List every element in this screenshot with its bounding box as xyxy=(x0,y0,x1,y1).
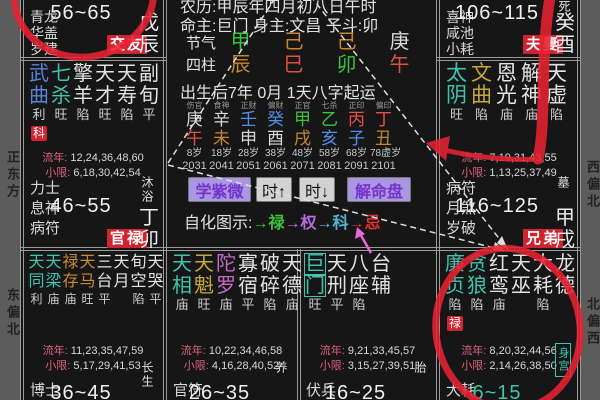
dayun-column[interactable]: 伤官庚午8岁2031 xyxy=(181,101,208,172)
star-column: 红鸾庙 xyxy=(488,253,510,331)
star-column: 解神庙 xyxy=(519,63,544,123)
star-column: 天德庙 xyxy=(281,253,303,313)
god-label: 咸池 xyxy=(446,25,474,41)
stem-char: 甲 xyxy=(554,207,576,229)
dayun-age: 18岁 xyxy=(208,148,235,160)
star-char: 贞 xyxy=(445,275,465,297)
dayun-column[interactable]: 正财壬申28岁2051 xyxy=(235,101,262,172)
dayun-age: 78虚岁 xyxy=(370,148,397,160)
star-status: 庙 xyxy=(219,297,232,313)
star-status: 平 xyxy=(98,291,110,307)
star-column: 天刑平 xyxy=(326,253,348,313)
star-char: 天 xyxy=(45,253,61,272)
star-status: 陷 xyxy=(132,291,144,307)
life-stage: 沐浴 xyxy=(139,176,156,204)
life-stage: 墓 xyxy=(555,176,572,190)
star-char: 曲 xyxy=(29,85,49,107)
star-char: 文 xyxy=(471,63,492,85)
age-range: 6~15 xyxy=(449,382,545,400)
god-label: 病符 xyxy=(30,219,60,239)
dayun-year: 2071 xyxy=(289,160,316,172)
star-status: 平 xyxy=(149,291,161,307)
body-palace-badge: 身宫 xyxy=(555,343,571,377)
star-char: 旬 xyxy=(139,85,159,107)
fortune-lines: 流年: 11,23,35,47,59小限: 5,17,29,41,53 xyxy=(33,344,153,374)
star-char: 三 xyxy=(96,253,112,272)
xiaoxian-line: 小限: 5,17,29,41,53 xyxy=(33,359,153,374)
star-char: 巨 xyxy=(304,253,326,275)
star-status: 陷 xyxy=(470,297,483,313)
star-column: 天梁庙 xyxy=(45,253,62,307)
star-char: 碎 xyxy=(260,275,280,297)
liunian-label: 流年: xyxy=(42,152,70,164)
star-status: 利 xyxy=(30,291,42,307)
dayun-age: 58岁 xyxy=(316,148,343,160)
liunian-label: 流年: xyxy=(461,345,489,357)
star-status: 陷 xyxy=(536,297,549,313)
dayun-year: 2061 xyxy=(262,160,289,172)
liunian-values: 11,23,35,47,59 xyxy=(71,345,144,357)
age-range: 16~25 xyxy=(309,382,402,400)
star-char: 天 xyxy=(546,63,567,85)
star-list: 武曲利科七杀旺擎羊陷天才旺天寿陷副旬平 xyxy=(28,63,160,141)
star-column: 巨门旺 xyxy=(304,253,326,313)
star-char: 破 xyxy=(260,253,280,275)
dayun-branch: 亥 xyxy=(316,129,343,148)
ten-god-label: 七杀 xyxy=(316,101,343,110)
star-char: 陀 xyxy=(216,253,236,275)
star-char: 天 xyxy=(113,253,129,272)
liunian-values: 9,21,33,45,57 xyxy=(348,345,415,357)
learn-ziwei-button[interactable]: 学紫微 xyxy=(188,177,251,202)
star-status: 平 xyxy=(142,107,155,123)
star-char: 羊 xyxy=(73,85,93,107)
life-stage: 养 xyxy=(273,361,290,375)
stem-char: 戊 xyxy=(138,12,160,34)
pillar-stem: 己 xyxy=(267,31,320,54)
star-status: 庙 xyxy=(47,291,59,307)
star-char: 天 xyxy=(194,253,214,275)
star-char: 辅 xyxy=(371,275,391,297)
dayun-year: 2101 xyxy=(370,160,397,172)
star-status: 陷 xyxy=(352,297,365,313)
palace-hai[interactable]: 廉贞陷禄贪狼陷红鸾庙天巫大耗陷龙德流年: 8,20,32,44,56小限: 2,… xyxy=(441,251,577,400)
zihua-legend: 自化图示:→禄→权→科→忌 xyxy=(184,209,381,233)
dayun-age: 28岁 xyxy=(235,148,262,160)
zihua-label: 自化图示: xyxy=(184,215,252,232)
star-char: 刑 xyxy=(327,275,347,297)
star-char: 德 xyxy=(555,275,575,297)
dayun-stem: 乙 xyxy=(316,110,343,129)
liunian-values: 7,19,31,43,55 xyxy=(489,152,556,164)
star-column: 武曲利科 xyxy=(28,63,50,141)
liunian-label: 流年: xyxy=(320,345,348,357)
liunian-label: 流年: xyxy=(181,345,209,357)
direction-label-north-west: 北偏西 xyxy=(583,297,600,348)
liunian-line: 流年: 8,20,32,44,56 xyxy=(449,344,569,359)
zihua-item: →权 xyxy=(284,215,316,232)
star-char: 梁 xyxy=(45,272,61,291)
star-char: 龙 xyxy=(555,253,575,275)
age-range: 46~55 xyxy=(33,195,129,218)
star-char: 禄 xyxy=(62,253,78,272)
dayun-branch: 未 xyxy=(208,129,235,148)
star-char: 相 xyxy=(172,275,192,297)
four-pillars-label: 节气 四柱 xyxy=(186,33,216,77)
star-list: 巨门旺天刑平八座陷台辅 xyxy=(304,253,392,313)
star-char: 存 xyxy=(62,272,78,291)
pillar-stem: 己 xyxy=(320,31,373,54)
star-char: 天 xyxy=(172,253,192,275)
sizhu-label: 四柱 xyxy=(186,55,216,77)
star-char: 武 xyxy=(29,63,49,85)
pillar-column: 庚午 xyxy=(373,31,426,77)
star-status: 平 xyxy=(330,297,343,313)
star-column: 副旬平 xyxy=(138,63,160,141)
star-char: 恩 xyxy=(496,63,517,85)
pillar-branch: 巳 xyxy=(267,54,320,77)
fortune-lines: 流年: 12,24,36,48,60小限: 6,18,30,42,54 xyxy=(33,151,153,181)
star-char: 天 xyxy=(95,63,115,85)
star-char: 天 xyxy=(28,253,44,272)
liunian-line: 流年: 7,19,31,43,55 xyxy=(449,151,569,166)
star-status: 旺 xyxy=(54,107,67,123)
dayun-age: 48岁 xyxy=(289,148,316,160)
center-info-panel: 农历:甲辰年四月初八日午时 命主:巨门 身主:文昌 子斗:卯 节气 四柱 甲辰己… xyxy=(168,0,435,248)
xiaoxian-label: 小限: xyxy=(184,360,212,372)
star-column: 天相庙 xyxy=(171,253,193,313)
god-label: 岁破 xyxy=(446,219,476,239)
star-char: 耗 xyxy=(533,275,553,297)
star-char: 寿 xyxy=(117,85,137,107)
star-status: 旺 xyxy=(81,291,93,307)
zihua-items: →禄→权→科→忌 xyxy=(252,215,380,232)
branch-char: 辰 xyxy=(138,34,160,56)
star-status: 庙 xyxy=(285,297,298,313)
ten-god-label: 偏财 xyxy=(262,101,289,110)
decade-luck-table: 伤官庚午8岁2031食神辛未18岁2041正财壬申28岁2051偏财癸酉38岁2… xyxy=(181,101,397,172)
ten-god-label: 正印 xyxy=(343,101,370,110)
star-column: 恩光庙 xyxy=(494,63,519,123)
dayun-year: 2031 xyxy=(181,160,208,172)
star-char: 曲 xyxy=(471,85,492,107)
dayun-branch: 子 xyxy=(343,129,370,148)
star-column: 八座陷 xyxy=(348,253,370,313)
sihua-badge: 禄 xyxy=(447,316,463,331)
star-char: 马 xyxy=(79,272,95,291)
star-status: 旺 xyxy=(450,107,463,123)
star-char: 杀 xyxy=(51,85,71,107)
star-char: 台 xyxy=(371,253,391,275)
star-char: 旬 xyxy=(130,253,146,272)
xiaoxian-label: 小限: xyxy=(45,360,73,372)
star-column: 贪狼陷 xyxy=(466,253,488,331)
palace-chou[interactable]: 天相庙天魁旺陀罗庙寡宿平破碎陷天德庙流年: 10,22,34,46,58小限: … xyxy=(168,251,295,400)
star-column: 廉贞陷禄 xyxy=(444,253,466,331)
pillar-branch: 午 xyxy=(373,54,426,77)
god-label: 岁建 xyxy=(30,41,58,57)
star-status: 陷 xyxy=(76,107,89,123)
hour-down-button[interactable]: 时↓ xyxy=(299,177,335,202)
god-label: 小耗 xyxy=(446,41,474,57)
xiaoxian-label: 小限: xyxy=(320,360,348,372)
star-list: 太阴旺文曲陷恩光庙解神庙天虚陷 xyxy=(444,63,569,123)
star-column: 七杀旺 xyxy=(50,63,72,141)
branch-char: 卯 xyxy=(138,229,160,251)
star-column: 天月 xyxy=(113,253,130,307)
dayun-branch: 申 xyxy=(235,129,262,148)
star-char: 大 xyxy=(533,253,553,275)
star-char: 太 xyxy=(446,63,467,85)
xiaoxian-values: 3,15,27,39,51 xyxy=(348,360,415,372)
dayun-branch: 戌 xyxy=(289,129,316,148)
liunian-values: 10,22,34,46,58 xyxy=(209,345,282,357)
dayun-stem: 庚 xyxy=(181,110,208,129)
sihua-badge: 科 xyxy=(31,126,47,141)
fortune-lines: 流年: 7,19,31,43,55小限: 1,13,25,37,49 xyxy=(449,151,569,181)
liunian-line: 流年: 9,21,33,45,57 xyxy=(309,344,426,359)
star-column: 天寿陷 xyxy=(116,63,138,141)
dayun-year: 2081 xyxy=(316,160,343,172)
dayun-year: 2091 xyxy=(343,160,370,172)
ziwei-chart: 正东方 东偏北 西偏北 北偏西 青龙华盖岁建56~65交友戊辰 喜神咸池小耗10… xyxy=(0,0,600,400)
liunian-line: 流年: 12,24,36,48,60 xyxy=(33,151,153,166)
star-char: 德 xyxy=(282,275,302,297)
liunian-line: 流年: 11,23,35,47,59 xyxy=(33,344,153,359)
star-char: 天 xyxy=(282,253,302,275)
pillar-stem: 庚 xyxy=(373,31,426,54)
dayun-branch: 丑 xyxy=(370,129,397,148)
star-char: 台 xyxy=(96,272,112,291)
liunian-values: 12,24,36,48,60 xyxy=(70,152,143,164)
star-status: 利 xyxy=(32,107,45,123)
ten-god-label: 食神 xyxy=(208,101,235,110)
star-status: 陷 xyxy=(120,107,133,123)
star-status: 旺 xyxy=(98,107,111,123)
direction-strip-right: 西偏北 北偏西 xyxy=(580,0,600,400)
age-range: 116~125 xyxy=(449,195,545,218)
palace-xu[interactable]: 太阴旺文曲陷恩光庙解神庙天虚陷流年: 7,19,31,43,55小限: 1,13… xyxy=(441,61,577,247)
ten-god-label: 偏印 xyxy=(370,101,397,110)
direction-strip-left: 正东方 东偏北 xyxy=(0,0,21,400)
star-column: 天巫 xyxy=(510,253,532,331)
stem-char: 丁 xyxy=(138,207,160,229)
zihua-item: →科 xyxy=(316,215,348,232)
star-char: 八 xyxy=(349,253,369,275)
pillar-stem: 甲 xyxy=(214,31,267,54)
pillar-branch: 辰 xyxy=(214,54,267,77)
qiyun-text: 出生后7年 0月 1天八字起运 xyxy=(180,79,376,103)
star-char: 座 xyxy=(349,275,369,297)
stem-branch: 戊辰 xyxy=(138,12,160,56)
god-label: 华盖 xyxy=(30,25,58,41)
star-column: 天哭平 xyxy=(147,253,164,307)
xiaoxian-line: 小限: 4,16,28,40,52 xyxy=(176,359,287,374)
star-status: 陷 xyxy=(263,297,276,313)
fortune-lines: 流年: 8,20,32,44,56小限: 2,14,26,38,50 xyxy=(449,344,569,374)
star-column: 破碎陷 xyxy=(259,253,281,313)
star-column: 大耗陷 xyxy=(532,253,554,331)
star-status: 庙 xyxy=(64,291,76,307)
star-column: 天马旺 xyxy=(79,253,96,307)
palace-zi[interactable]: 巨门旺天刑平八座陷台辅流年: 9,21,33,45,57小限: 3,15,27,… xyxy=(301,251,434,400)
dayun-stem: 癸 xyxy=(262,110,289,129)
pillar-branch: 卯 xyxy=(320,54,373,77)
palace-chen[interactable]: 青龙华盖岁建56~65交友戊辰 xyxy=(25,0,161,57)
xiaoxian-label: 小限: xyxy=(461,360,489,372)
xiaoxian-values: 6,18,30,42,54 xyxy=(73,167,140,179)
dayun-stem: 丁 xyxy=(370,110,397,129)
life-stage: 长生 xyxy=(139,361,156,389)
star-char: 天 xyxy=(117,63,137,85)
fortune-lines: 流年: 9,21,33,45,57小限: 3,15,27,39,51 xyxy=(309,344,426,374)
pillar-column: 己卯 xyxy=(320,31,373,77)
star-char: 魁 xyxy=(194,275,214,297)
star-char: 鸾 xyxy=(489,275,509,297)
four-pillars: 甲辰己巳己卯庚午 xyxy=(214,31,426,77)
dayun-age: 68岁 xyxy=(343,148,370,160)
star-column: 台辅 xyxy=(370,253,392,313)
zihua-item: →忌 xyxy=(349,215,381,232)
pillar-column: 甲辰 xyxy=(214,31,267,77)
fortune-lines: 流年: 10,22,34,46,58小限: 4,16,28,40,52 xyxy=(176,344,287,374)
dayun-age: 8岁 xyxy=(181,148,208,160)
dayun-column[interactable]: 食神辛未18岁2041 xyxy=(208,101,235,172)
star-char: 天 xyxy=(147,253,163,272)
star-column: 天虚陷 xyxy=(544,63,569,123)
star-char: 虚 xyxy=(546,85,567,107)
star-list: 天同利天梁庙禄存庙天马旺三台平天月旬空陷天哭平 xyxy=(28,253,164,307)
liunian-values: 8,20,32,44,56 xyxy=(489,345,556,357)
star-char: 光 xyxy=(496,85,517,107)
jieqi-label: 节气 xyxy=(186,33,216,55)
stem-branch: 癸酉 xyxy=(554,12,576,56)
stem-branch: 甲戌 xyxy=(554,207,576,251)
star-status: 庙 xyxy=(492,297,505,313)
star-column: 陀罗庙 xyxy=(215,253,237,313)
star-char: 狼 xyxy=(467,275,487,297)
ten-god-label: 正财 xyxy=(235,101,262,110)
pillar-column: 己巳 xyxy=(267,31,320,77)
star-column: 天才旺 xyxy=(94,63,116,141)
life-stage: 胎 xyxy=(412,361,429,375)
star-column: 文曲陷 xyxy=(469,63,494,123)
liunian-label: 流年: xyxy=(43,345,71,357)
dayun-column[interactable]: 七杀乙亥58岁2081 xyxy=(316,101,343,172)
stem-char: 癸 xyxy=(554,12,576,34)
star-char: 天 xyxy=(511,253,531,275)
age-range: 26~35 xyxy=(176,382,263,400)
hour-up-button[interactable]: 时↑ xyxy=(256,177,292,202)
star-char: 空 xyxy=(130,272,146,291)
star-char: 擎 xyxy=(73,63,93,85)
ten-god-label: 伤官 xyxy=(181,101,208,110)
star-char: 同 xyxy=(28,272,44,291)
star-char: 天 xyxy=(79,253,95,272)
star-char: 巫 xyxy=(511,275,531,297)
dayun-column[interactable]: 偏印丁丑78虚岁2101 xyxy=(370,101,397,172)
star-char: 天 xyxy=(327,253,347,275)
xiaoxian-values: 4,16,28,40,52 xyxy=(212,360,279,372)
zihua-item: →禄 xyxy=(252,215,284,232)
star-char: 寡 xyxy=(238,253,258,275)
dayun-age: 38岁 xyxy=(262,148,289,160)
star-char: 宿 xyxy=(238,275,258,297)
dayun-branch: 午 xyxy=(181,129,208,148)
star-char: 才 xyxy=(95,85,115,107)
star-status: 旺 xyxy=(308,297,321,313)
dayun-year: 2051 xyxy=(235,160,262,172)
star-status: 陷 xyxy=(475,107,488,123)
xiaoxian-values: 1,13,25,37,49 xyxy=(489,167,556,179)
branch-char: 戌 xyxy=(554,229,576,251)
star-status: 陷 xyxy=(448,297,461,313)
star-column: 擎羊陷 xyxy=(72,63,94,141)
star-list: 廉贞陷禄贪狼陷红鸾庙天巫大耗陷龙德 xyxy=(444,253,576,331)
star-status: 陷 xyxy=(550,107,563,123)
star-column: 天魁旺 xyxy=(193,253,215,313)
age-range: 36~45 xyxy=(33,382,129,400)
dayun-column[interactable]: 偏财癸酉38岁2061 xyxy=(262,101,289,172)
star-list: 天相庙天魁旺陀罗庙寡宿平破碎陷天德庙 xyxy=(171,253,303,313)
star-column: 龙德 xyxy=(554,253,576,331)
star-char: 罗 xyxy=(216,275,236,297)
star-column: 旬空陷 xyxy=(130,253,147,307)
star-char: 七 xyxy=(51,63,71,85)
direction-label-west-north: 西偏北 xyxy=(583,160,600,211)
dayun-column[interactable]: 正印丙子68岁2091 xyxy=(343,101,370,172)
star-char: 月 xyxy=(113,272,129,291)
xiaoxian-values: 5,17,29,41,53 xyxy=(73,360,140,372)
dayun-stem: 辛 xyxy=(208,110,235,129)
star-char: 红 xyxy=(489,253,509,275)
star-column: 三台平 xyxy=(96,253,113,307)
dayun-branch: 酉 xyxy=(262,129,289,148)
star-char: 贪 xyxy=(467,253,487,275)
star-char: 阴 xyxy=(446,85,467,107)
star-status: 平 xyxy=(241,297,254,313)
star-char: 廉 xyxy=(445,253,465,275)
liunian-line: 流年: 10,22,34,46,58 xyxy=(176,344,287,359)
stem-branch: 丁卯 xyxy=(138,207,160,251)
dayun-column[interactable]: 正官甲戌48岁2071 xyxy=(289,101,316,172)
star-char: 神 xyxy=(521,85,542,107)
star-char: 哭 xyxy=(147,272,163,291)
star-status: 旺 xyxy=(197,297,210,313)
star-column: 禄存庙 xyxy=(62,253,79,307)
palace-you[interactable]: 喜神咸池小耗106~115夫妻死癸酉 xyxy=(441,0,577,57)
star-status: 庙 xyxy=(500,107,513,123)
xiaoxian-values: 2,14,26,38,50 xyxy=(489,360,556,372)
liunian-label: 流年: xyxy=(461,152,489,164)
star-column: 天同利 xyxy=(28,253,45,307)
dayun-stem: 壬 xyxy=(235,110,262,129)
ten-god-label: 正官 xyxy=(289,101,316,110)
star-status: 庙 xyxy=(525,107,538,123)
dayun-year: 2041 xyxy=(208,160,235,172)
age-range: 106~115 xyxy=(449,2,545,25)
xiaoxian-line: 小限: 3,15,27,39,51 xyxy=(309,359,426,374)
xiaoxian-label: 小限: xyxy=(461,167,489,179)
star-column: 太阴旺 xyxy=(444,63,469,123)
star-column: 寡宿平 xyxy=(237,253,259,313)
star-char: 副 xyxy=(139,63,159,85)
star-status: 庙 xyxy=(175,297,188,313)
interpret-chart-button[interactable]: 解命盘 xyxy=(347,177,411,202)
palace-mao[interactable]: 武曲利科七杀旺擎羊陷天才旺天寿陷副旬平流年: 12,24,36,48,60小限:… xyxy=(25,61,161,247)
palace-yin[interactable]: 天同利天梁庙禄存庙天马旺三台平天月旬空陷天哭平流年: 11,23,35,47,5… xyxy=(25,251,161,400)
star-char: 门 xyxy=(304,275,326,297)
